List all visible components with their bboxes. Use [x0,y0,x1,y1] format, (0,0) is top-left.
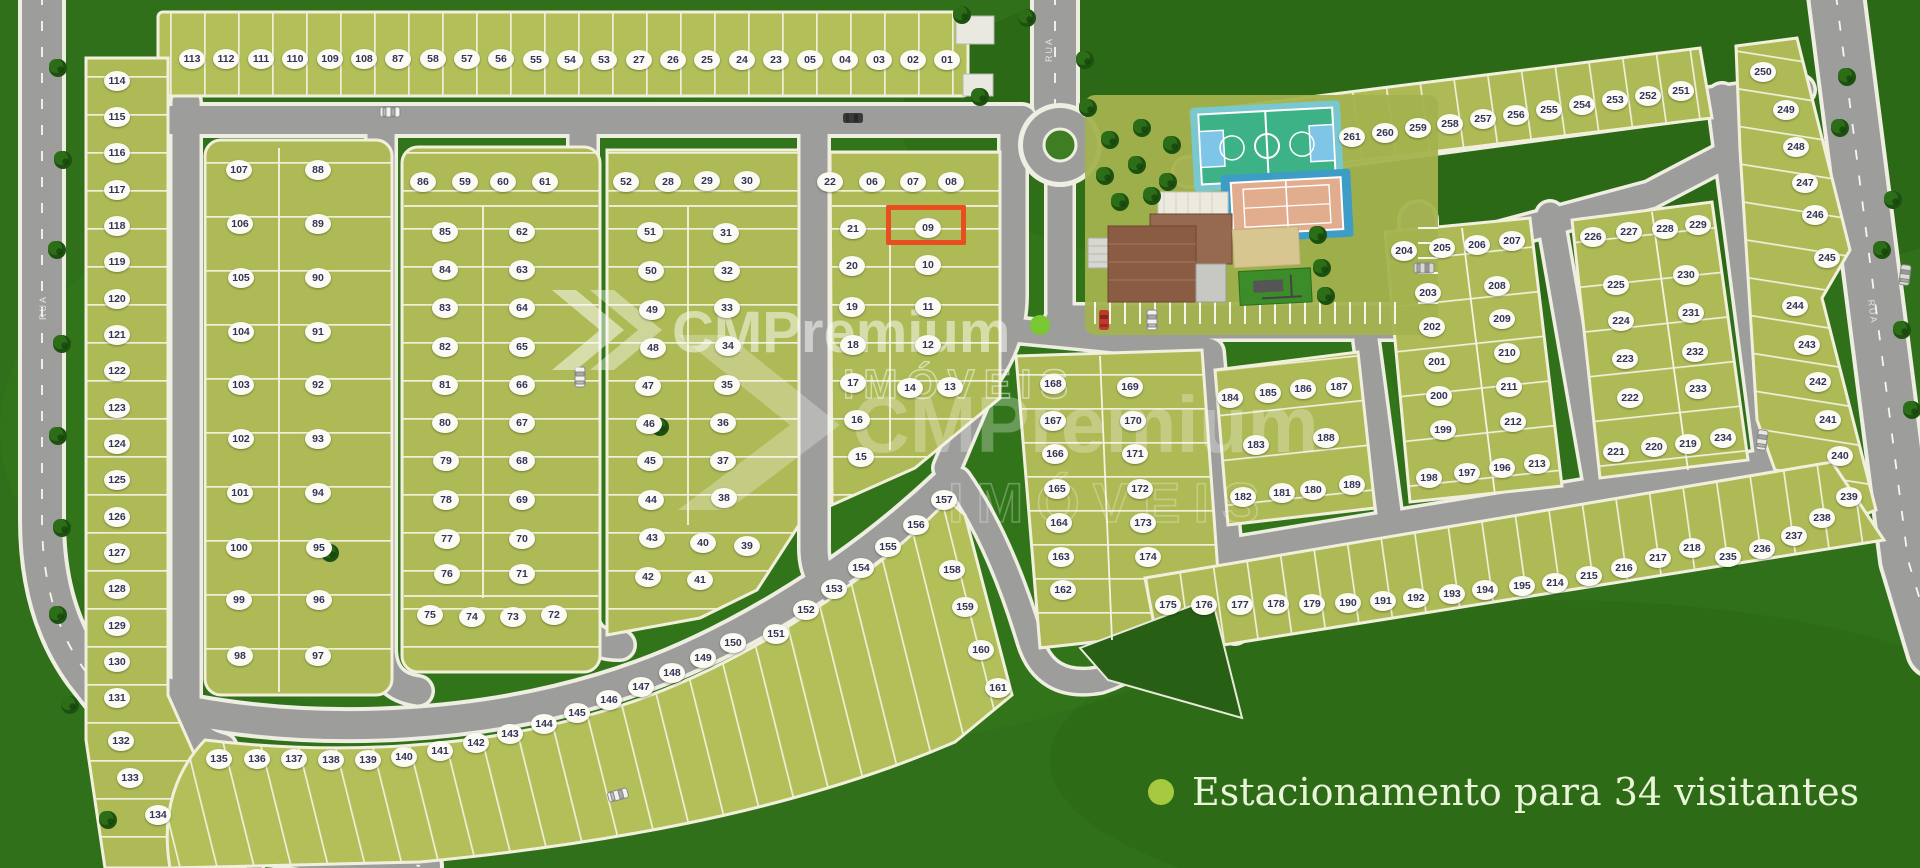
lot-171[interactable]: 171 [1122,444,1148,464]
lot-103[interactable]: 103 [228,375,254,395]
lot-125[interactable]: 125 [104,470,130,490]
lot-08[interactable]: 08 [938,172,964,192]
lot-90[interactable]: 90 [305,268,331,288]
lot-83[interactable]: 83 [432,298,458,318]
lot-257[interactable]: 257 [1470,109,1496,129]
lot-188[interactable]: 188 [1313,428,1339,448]
lot-82[interactable]: 82 [432,337,458,357]
lot-127[interactable]: 127 [104,543,130,563]
lot-166[interactable]: 166 [1042,444,1068,464]
lot-49[interactable]: 49 [639,300,665,320]
lot-202[interactable]: 202 [1419,317,1445,337]
lot-06[interactable]: 06 [859,172,885,192]
lot-197[interactable]: 197 [1454,463,1480,483]
lot-153[interactable]: 153 [821,579,847,599]
lot-215[interactable]: 215 [1576,566,1602,586]
lot-87[interactable]: 87 [385,49,411,69]
lot-120[interactable]: 120 [104,289,130,309]
lot-216[interactable]: 216 [1611,558,1637,578]
lot-84[interactable]: 84 [432,260,458,280]
lot-152[interactable]: 152 [793,600,819,620]
lot-68[interactable]: 68 [509,451,535,471]
lot-72[interactable]: 72 [541,605,567,625]
lot-212[interactable]: 212 [1500,412,1526,432]
lot-214[interactable]: 214 [1542,573,1568,593]
lot-126[interactable]: 126 [104,507,130,527]
lot-111[interactable]: 111 [248,49,274,69]
lot-71[interactable]: 71 [509,564,535,584]
lot-199[interactable]: 199 [1430,420,1456,440]
lot-131[interactable]: 131 [104,688,130,708]
lot-54[interactable]: 54 [557,50,583,70]
lot-32[interactable]: 32 [714,261,740,281]
lot-33[interactable]: 33 [714,298,740,318]
lot-43[interactable]: 43 [639,528,665,548]
lot-39[interactable]: 39 [734,536,760,556]
lot-208[interactable]: 208 [1484,276,1510,296]
lot-30[interactable]: 30 [734,171,760,191]
lot-38[interactable]: 38 [711,488,737,508]
lot-254[interactable]: 254 [1569,95,1595,115]
lot-04[interactable]: 04 [832,50,858,70]
lot-201[interactable]: 201 [1424,352,1450,372]
lot-59[interactable]: 59 [452,172,478,192]
lot-167[interactable]: 167 [1040,411,1066,431]
lot-186[interactable]: 186 [1290,379,1316,399]
lot-179[interactable]: 179 [1299,594,1325,614]
lot-191[interactable]: 191 [1370,591,1396,611]
lot-200[interactable]: 200 [1426,386,1452,406]
lot-07[interactable]: 07 [900,172,926,192]
lot-158[interactable]: 158 [939,560,965,580]
lot-93[interactable]: 93 [305,429,331,449]
lot-27[interactable]: 27 [626,50,652,70]
lot-115[interactable]: 115 [104,107,130,127]
lot-207[interactable]: 207 [1499,231,1525,251]
lot-159[interactable]: 159 [952,597,978,617]
lot-40[interactable]: 40 [690,533,716,553]
lot-44[interactable]: 44 [638,490,664,510]
lot-187[interactable]: 187 [1326,377,1352,397]
lot-35[interactable]: 35 [714,375,740,395]
lot-222[interactable]: 222 [1617,388,1643,408]
legend-text: Estacionamento para 34 visitantes [1192,770,1859,814]
lot-23[interactable]: 23 [763,50,789,70]
lot-47[interactable]: 47 [635,376,661,396]
lot-37[interactable]: 37 [710,451,736,471]
lot-62[interactable]: 62 [509,222,535,242]
lot-241[interactable]: 241 [1815,410,1841,430]
lot-157[interactable]: 157 [931,490,957,510]
lot-badges-layer: 1131121111101091088758575655545327262524… [0,0,1920,868]
lot-104[interactable]: 104 [228,322,254,342]
lot-05[interactable]: 05 [797,50,823,70]
lot-13[interactable]: 13 [937,377,963,397]
lot-243[interactable]: 243 [1794,335,1820,355]
lot-101[interactable]: 101 [227,483,253,503]
lot-236[interactable]: 236 [1749,539,1775,559]
lot-78[interactable]: 78 [433,490,459,510]
lot-11[interactable]: 11 [915,297,941,317]
lot-64[interactable]: 64 [509,298,535,318]
lot-19[interactable]: 19 [839,297,865,317]
lot-228[interactable]: 228 [1652,219,1678,239]
lot-137[interactable]: 137 [281,749,307,769]
lot-73[interactable]: 73 [500,607,526,627]
lot-69[interactable]: 69 [509,490,535,510]
lot-238[interactable]: 238 [1809,508,1835,528]
lot-60[interactable]: 60 [490,172,516,192]
lot-99[interactable]: 99 [226,590,252,610]
lot-20[interactable]: 20 [839,256,865,276]
lot-177[interactable]: 177 [1227,595,1253,615]
lot-75[interactable]: 75 [417,605,443,625]
lot-31[interactable]: 31 [713,223,739,243]
lot-185[interactable]: 185 [1255,383,1281,403]
lot-89[interactable]: 89 [305,214,331,234]
lot-219[interactable]: 219 [1675,434,1701,454]
lot-203[interactable]: 203 [1415,283,1441,303]
lot-85[interactable]: 85 [432,222,458,242]
lot-110[interactable]: 110 [282,49,308,69]
lot-155[interactable]: 155 [875,537,901,557]
lot-134[interactable]: 134 [145,805,171,825]
lot-226[interactable]: 226 [1580,227,1606,247]
lot-182[interactable]: 182 [1230,487,1256,507]
lot-14[interactable]: 14 [897,378,923,398]
lot-95[interactable]: 95 [306,538,332,558]
lot-148[interactable]: 148 [659,663,685,683]
lot-225[interactable]: 225 [1603,275,1629,295]
lot-01[interactable]: 01 [934,50,960,70]
lot-130[interactable]: 130 [104,652,130,672]
lot-231[interactable]: 231 [1678,303,1704,323]
lot-74[interactable]: 74 [459,607,485,627]
lot-36[interactable]: 36 [710,413,736,433]
lot-233[interactable]: 233 [1685,379,1711,399]
lot-18[interactable]: 18 [840,335,866,355]
lot-184[interactable]: 184 [1217,388,1243,408]
lot-235[interactable]: 235 [1715,547,1741,567]
lot-253[interactable]: 253 [1602,90,1628,110]
lot-79[interactable]: 79 [433,451,459,471]
lot-100[interactable]: 100 [226,538,252,558]
lot-248[interactable]: 248 [1783,137,1809,157]
legend-bullet-icon [1148,779,1174,805]
lot-94[interactable]: 94 [305,483,331,503]
lot-58[interactable]: 58 [420,49,446,69]
lot-259[interactable]: 259 [1405,118,1431,138]
lot-196[interactable]: 196 [1489,458,1515,478]
lot-149[interactable]: 149 [690,648,716,668]
lot-65[interactable]: 65 [509,337,535,357]
lot-229[interactable]: 229 [1685,215,1711,235]
lot-227[interactable]: 227 [1616,222,1642,242]
lot-97[interactable]: 97 [305,646,331,666]
lot-250[interactable]: 250 [1750,62,1776,82]
lot-260[interactable]: 260 [1372,123,1398,143]
lot-193[interactable]: 193 [1439,584,1465,604]
lot-16[interactable]: 16 [844,410,870,430]
lot-10[interactable]: 10 [915,255,941,275]
lot-51[interactable]: 51 [637,222,663,242]
masterplan-map: RUA RUA RUA CMPremium IMÓVEIS CMPremium … [0,0,1920,868]
lot-213[interactable]: 213 [1524,454,1550,474]
lot-02[interactable]: 02 [900,50,926,70]
lot-162[interactable]: 162 [1050,580,1076,600]
lot-252[interactable]: 252 [1635,86,1661,106]
lot-41[interactable]: 41 [687,570,713,590]
lot-211[interactable]: 211 [1496,377,1522,397]
lot-189[interactable]: 189 [1339,475,1365,495]
lot-17[interactable]: 17 [840,373,866,393]
lot-175[interactable]: 175 [1155,595,1181,615]
lot-136[interactable]: 136 [244,749,270,769]
lot-164[interactable]: 164 [1046,513,1072,533]
lot-204[interactable]: 204 [1391,241,1417,261]
lot-42[interactable]: 42 [635,567,661,587]
lot-102[interactable]: 102 [228,429,254,449]
lot-174[interactable]: 174 [1135,547,1161,567]
lot-246[interactable]: 246 [1802,205,1828,225]
lot-239[interactable]: 239 [1836,487,1862,507]
lot-224[interactable]: 224 [1608,311,1634,331]
lot-109[interactable]: 109 [317,49,343,69]
lot-145[interactable]: 145 [564,703,590,723]
lot-168[interactable]: 168 [1040,374,1066,394]
lot-67[interactable]: 67 [509,413,535,433]
lot-77[interactable]: 77 [434,529,460,549]
lot-192[interactable]: 192 [1403,588,1429,608]
lot-234[interactable]: 234 [1710,428,1736,448]
lot-154[interactable]: 154 [848,558,874,578]
lot-52[interactable]: 52 [613,172,639,192]
lot-245[interactable]: 245 [1814,248,1840,268]
lot-50[interactable]: 50 [638,261,664,281]
lot-03[interactable]: 03 [866,50,892,70]
lot-124[interactable]: 124 [104,434,130,454]
lot-25[interactable]: 25 [694,50,720,70]
lot-22[interactable]: 22 [817,172,843,192]
lot-151[interactable]: 151 [763,624,789,644]
lot-251[interactable]: 251 [1668,81,1694,101]
lot-170[interactable]: 170 [1120,411,1146,431]
lot-161[interactable]: 161 [985,678,1011,698]
lot-217[interactable]: 217 [1645,548,1671,568]
lot-181[interactable]: 181 [1269,483,1295,503]
lot-261[interactable]: 261 [1339,127,1365,147]
lot-147[interactable]: 147 [628,677,654,697]
lot-21[interactable]: 21 [840,219,866,239]
lot-165[interactable]: 165 [1044,479,1070,499]
lot-255[interactable]: 255 [1536,100,1562,120]
lot-230[interactable]: 230 [1673,265,1699,285]
lot-172[interactable]: 172 [1127,479,1153,499]
lot-258[interactable]: 258 [1437,114,1463,134]
lot-237[interactable]: 237 [1781,526,1807,546]
lot-98[interactable]: 98 [227,646,253,666]
lot-55[interactable]: 55 [523,50,549,70]
lot-86[interactable]: 86 [410,172,436,192]
lot-46[interactable]: 46 [636,414,662,434]
lot-146[interactable]: 146 [596,690,622,710]
lot-63[interactable]: 63 [509,260,535,280]
lot-28[interactable]: 28 [655,172,681,192]
lot-45[interactable]: 45 [637,451,663,471]
lot-09[interactable]: 09 [915,218,941,238]
lot-96[interactable]: 96 [306,590,332,610]
lot-48[interactable]: 48 [640,338,666,358]
lot-221[interactable]: 221 [1603,442,1629,462]
lot-88[interactable]: 88 [305,160,331,180]
lot-209[interactable]: 209 [1489,309,1515,329]
lot-53[interactable]: 53 [591,50,617,70]
lot-163[interactable]: 163 [1048,547,1074,567]
lot-143[interactable]: 143 [497,724,523,744]
lot-156[interactable]: 156 [903,515,929,535]
lot-220[interactable]: 220 [1641,437,1667,457]
lot-240[interactable]: 240 [1827,446,1853,466]
lot-247[interactable]: 247 [1792,173,1818,193]
lot-116[interactable]: 116 [104,143,130,163]
lot-198[interactable]: 198 [1416,468,1442,488]
lot-24[interactable]: 24 [729,50,755,70]
lot-139[interactable]: 139 [355,750,381,770]
lot-176[interactable]: 176 [1191,595,1217,615]
lot-26[interactable]: 26 [660,50,686,70]
lot-117[interactable]: 117 [104,180,130,200]
lot-206[interactable]: 206 [1464,235,1490,255]
lot-56[interactable]: 56 [488,49,514,69]
lot-128[interactable]: 128 [104,579,130,599]
lot-119[interactable]: 119 [104,252,130,272]
lot-256[interactable]: 256 [1503,105,1529,125]
lot-244[interactable]: 244 [1782,296,1808,316]
lot-173[interactable]: 173 [1130,513,1156,533]
lot-133[interactable]: 133 [117,768,143,788]
lot-249[interactable]: 249 [1773,100,1799,120]
lot-232[interactable]: 232 [1682,342,1708,362]
lot-150[interactable]: 150 [720,633,746,653]
lot-183[interactable]: 183 [1243,435,1269,455]
lot-205[interactable]: 205 [1429,238,1455,258]
lot-195[interactable]: 195 [1509,576,1535,596]
lot-132[interactable]: 132 [108,731,134,751]
lot-76[interactable]: 76 [434,564,460,584]
lot-57[interactable]: 57 [454,49,480,69]
lot-141[interactable]: 141 [427,741,453,761]
lot-180[interactable]: 180 [1300,480,1326,500]
lot-29[interactable]: 29 [694,171,720,191]
lot-105[interactable]: 105 [228,268,254,288]
lot-34[interactable]: 34 [715,336,741,356]
lot-80[interactable]: 80 [432,413,458,433]
lot-160[interactable]: 160 [968,640,994,660]
lot-112[interactable]: 112 [213,49,239,69]
lot-106[interactable]: 106 [227,214,253,234]
lot-92[interactable]: 92 [305,375,331,395]
lot-114[interactable]: 114 [104,71,130,91]
visitor-parking-legend: Estacionamento para 34 visitantes [1148,770,1859,814]
lot-66[interactable]: 66 [509,375,535,395]
lot-169[interactable]: 169 [1117,377,1143,397]
lot-70[interactable]: 70 [509,529,535,549]
lot-12[interactable]: 12 [915,335,941,355]
lot-108[interactable]: 108 [351,49,377,69]
lot-121[interactable]: 121 [104,325,130,345]
lot-210[interactable]: 210 [1494,343,1520,363]
lot-194[interactable]: 194 [1472,580,1498,600]
lot-242[interactable]: 242 [1805,372,1831,392]
lot-142[interactable]: 142 [463,733,489,753]
lot-15[interactable]: 15 [848,447,874,467]
lot-178[interactable]: 178 [1263,594,1289,614]
lot-113[interactable]: 113 [179,49,205,69]
lot-144[interactable]: 144 [531,714,557,734]
lot-123[interactable]: 123 [104,398,130,418]
lot-135[interactable]: 135 [206,749,232,769]
lot-118[interactable]: 118 [104,216,130,236]
lot-138[interactable]: 138 [318,750,344,770]
lot-129[interactable]: 129 [104,616,130,636]
lot-61[interactable]: 61 [532,172,558,192]
lot-81[interactable]: 81 [432,375,458,395]
lot-190[interactable]: 190 [1335,593,1361,613]
lot-140[interactable]: 140 [391,747,417,767]
lot-122[interactable]: 122 [104,361,130,381]
lot-107[interactable]: 107 [226,160,252,180]
lot-91[interactable]: 91 [305,322,331,342]
lot-218[interactable]: 218 [1679,538,1705,558]
lot-223[interactable]: 223 [1612,349,1638,369]
